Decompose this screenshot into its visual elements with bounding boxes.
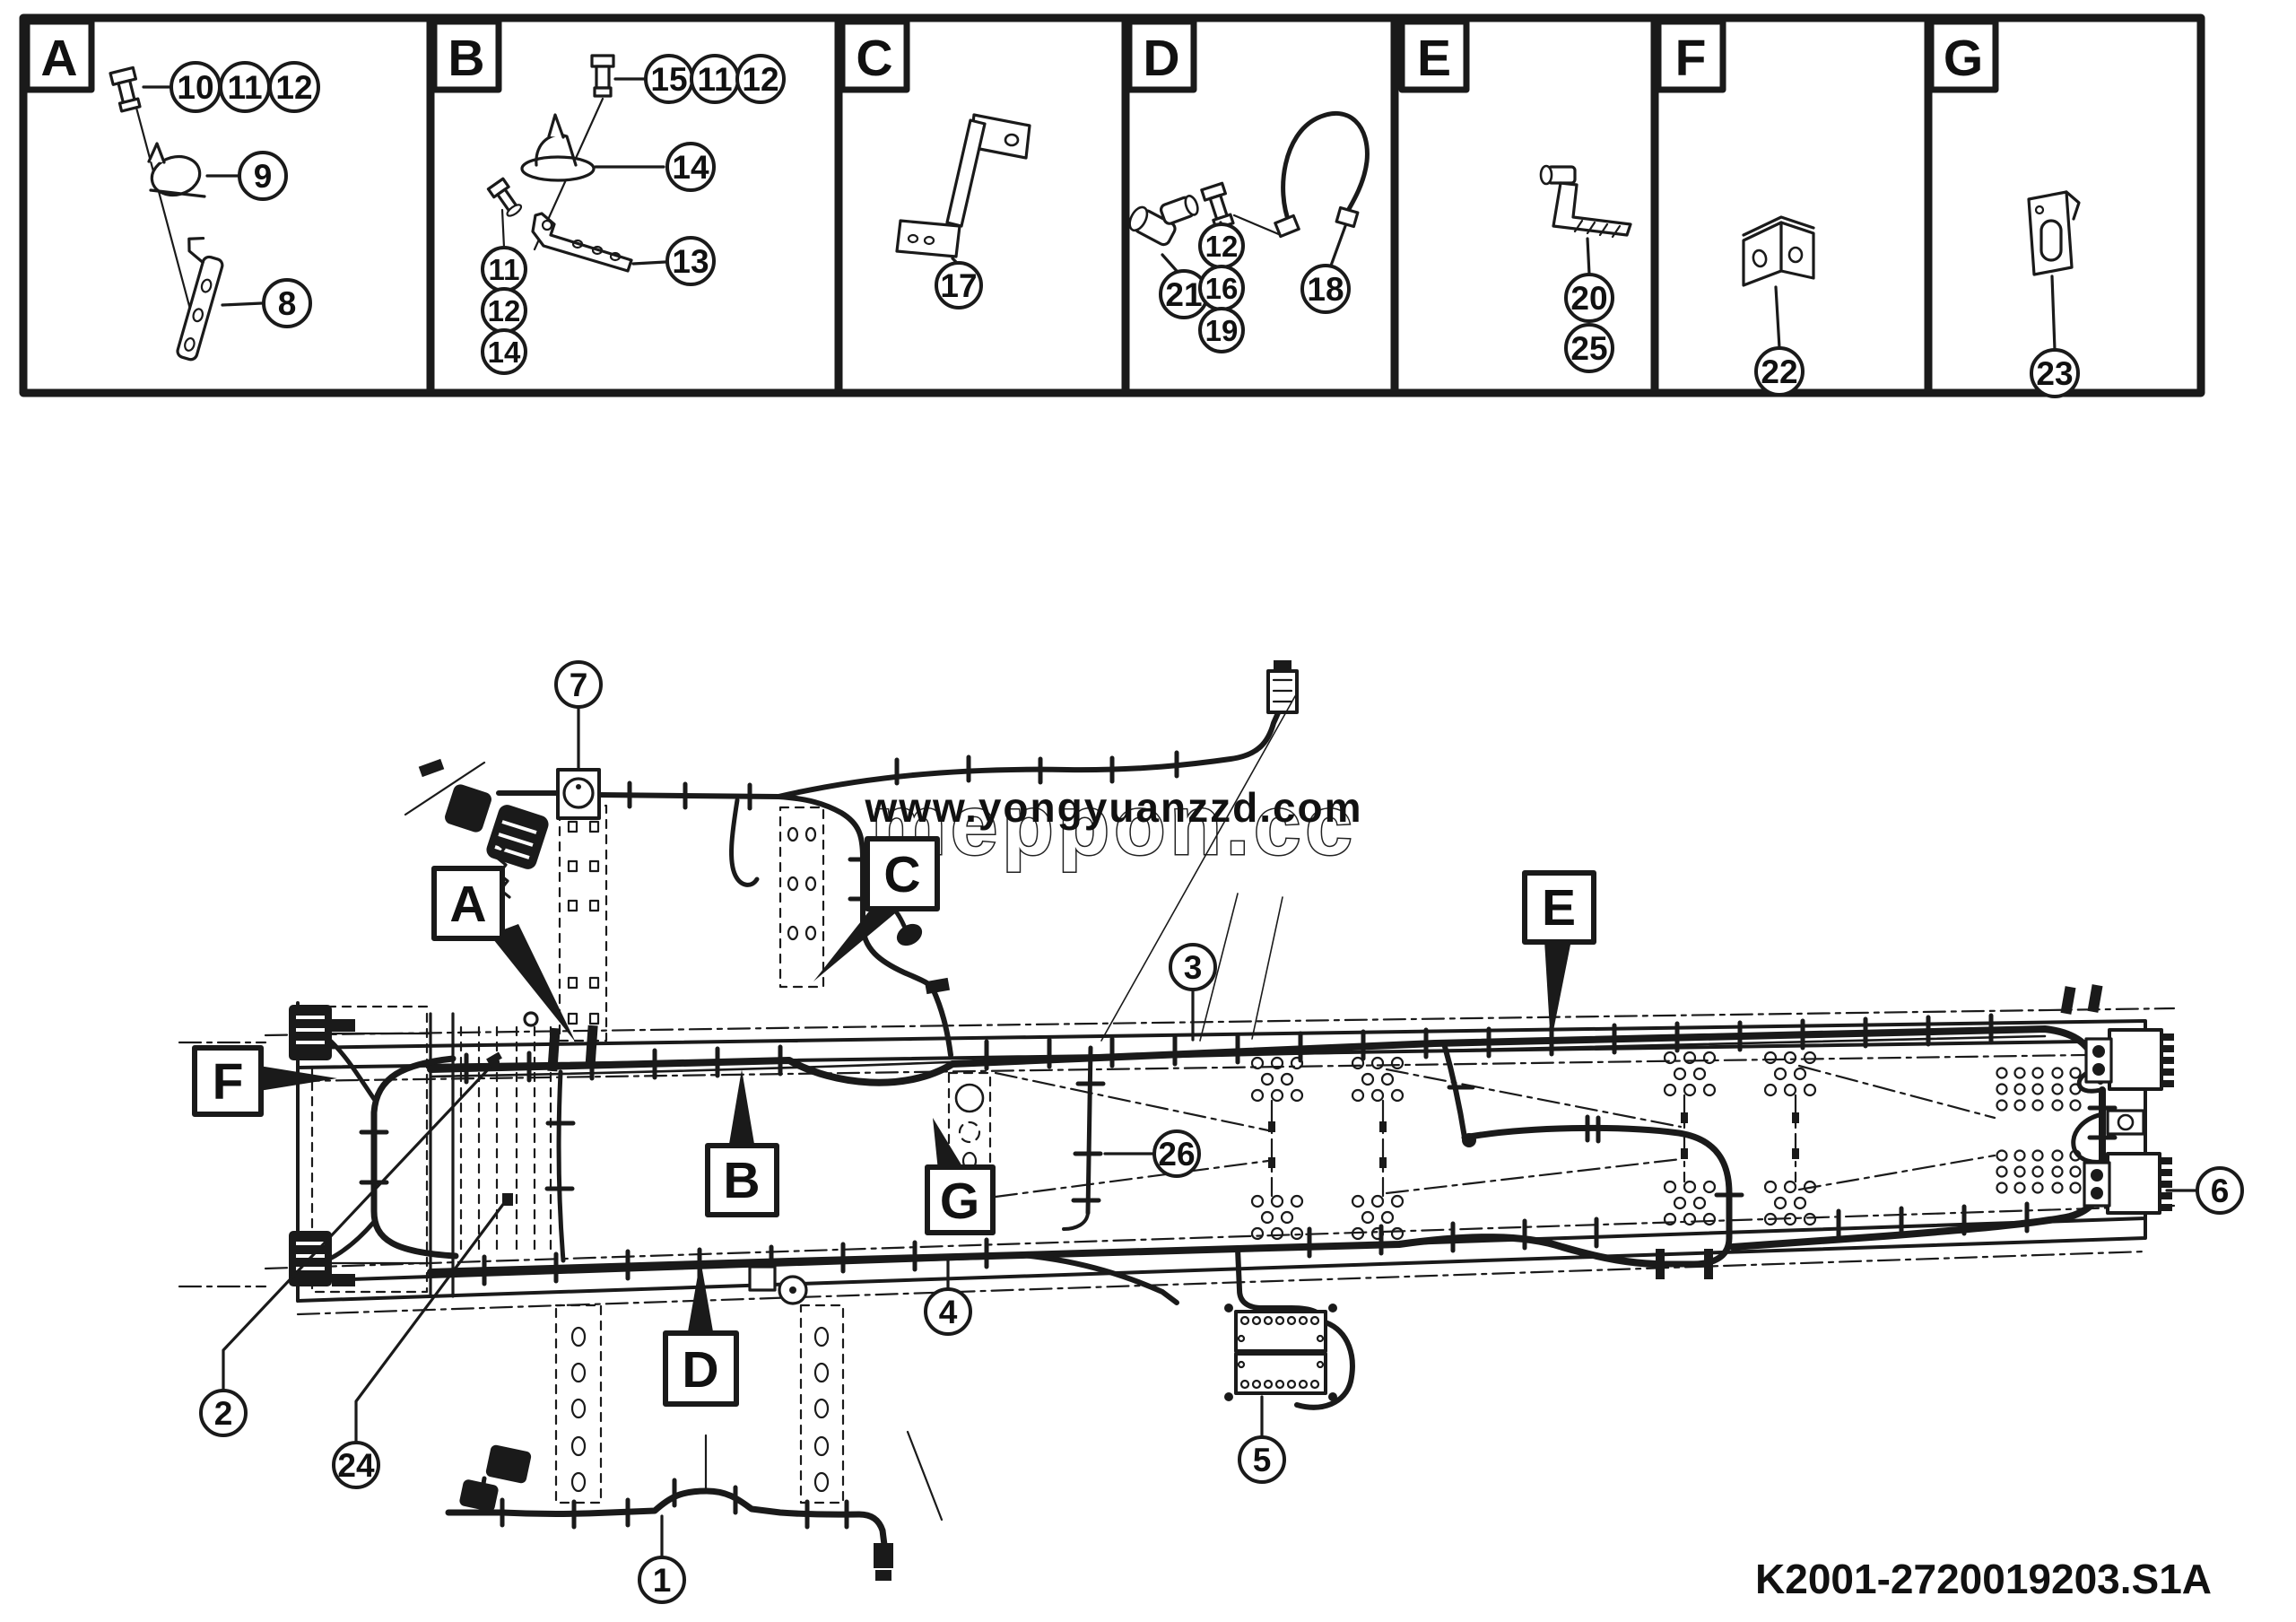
callout-20: 20: [1566, 275, 1613, 321]
marker-C: C: [813, 839, 937, 981]
callout-7: 7: [556, 662, 601, 818]
callout-23: 23: [2031, 350, 2078, 397]
svg-text:14: 14: [488, 336, 521, 369]
svg-text:13: 13: [672, 243, 709, 280]
panel-b-letter: B: [448, 30, 484, 87]
svg-text:12: 12: [742, 61, 778, 98]
callout-11: 11: [483, 248, 526, 291]
callout-3: 3: [1170, 945, 1215, 1040]
callout-22: 22: [1756, 348, 1803, 395]
svg-text:D: D: [682, 1341, 718, 1399]
panel-d-letter: D: [1143, 30, 1179, 87]
callout-12: 12: [737, 56, 784, 102]
marker-A: A: [434, 868, 576, 1042]
harness-connector-icon: [1268, 660, 1297, 712]
svg-text:B: B: [723, 1152, 760, 1209]
svg-text:11: 11: [227, 69, 262, 106]
svg-text:9: 9: [254, 158, 273, 195]
callout-4: 4: [926, 1260, 970, 1334]
parts-diagram-page: A 10 11 12 9: [0, 0, 2296, 1622]
callout-17: 17: [936, 263, 981, 308]
battery-junction-boxes: [1224, 1249, 1352, 1408]
svg-text:4: 4: [939, 1294, 958, 1330]
callout-10: 10: [171, 63, 220, 111]
marker-G: G: [927, 1118, 993, 1233]
callout-12: 12: [270, 63, 318, 111]
panel-a-letter: A: [40, 30, 77, 87]
svg-text:8: 8: [278, 285, 297, 322]
marker-E: E: [1525, 873, 1594, 1044]
panel-f-letter: F: [1675, 30, 1707, 87]
callout-1: 1: [639, 1516, 684, 1602]
svg-text:F: F: [213, 1053, 244, 1111]
svg-text:21: 21: [1165, 276, 1202, 313]
svg-text:C: C: [883, 846, 920, 903]
callout-15: 15: [646, 56, 692, 102]
callout-12: 12: [1200, 224, 1243, 267]
front-lamp-connector-icon: [289, 1231, 355, 1286]
marker-B: B: [708, 1069, 777, 1215]
svg-text:20: 20: [1570, 280, 1607, 317]
svg-text:3: 3: [1184, 949, 1203, 986]
svg-text:5: 5: [1253, 1442, 1272, 1478]
callout-6: 6: [2167, 1168, 2242, 1213]
rear-hole-cluster: [1997, 1068, 2081, 1193]
svg-text:15: 15: [650, 61, 687, 98]
svg-text:E: E: [1542, 879, 1576, 937]
rear-connector-stack: [2060, 984, 2174, 1213]
parts-diagram-canvas: A 10 11 12 9: [0, 0, 2296, 1622]
svg-text:12: 12: [275, 69, 312, 106]
svg-text:14: 14: [672, 149, 709, 186]
chassis-main-view: meppon.cc www.yongyuanzzd.com: [179, 660, 2242, 1602]
svg-text:10: 10: [177, 69, 213, 106]
svg-text:11: 11: [697, 61, 732, 98]
svg-text:12: 12: [488, 294, 521, 327]
svg-text:2: 2: [214, 1395, 233, 1432]
callout-11: 11: [221, 63, 269, 111]
svg-text:25: 25: [1570, 330, 1607, 367]
svg-text:19: 19: [1205, 314, 1239, 347]
detail-strip: A 10 11 12 9: [23, 18, 2201, 397]
svg-text:22: 22: [1761, 353, 1797, 390]
marker-D: D: [665, 1260, 736, 1404]
crossmember-stations: [949, 1052, 2081, 1239]
svg-text:1: 1: [653, 1562, 672, 1599]
panel-c-letter: C: [856, 30, 892, 87]
svg-text:7: 7: [570, 667, 588, 703]
callout-14: 14: [483, 330, 526, 373]
svg-text:12: 12: [1205, 230, 1239, 263]
svg-text:26: 26: [1158, 1136, 1195, 1173]
svg-text:24: 24: [337, 1447, 375, 1484]
svg-text:16: 16: [1205, 272, 1239, 305]
svg-text:A: A: [449, 876, 486, 933]
callout-12: 12: [483, 289, 526, 332]
panel-e-letter: E: [1417, 30, 1451, 87]
callout-19: 19: [1200, 309, 1243, 352]
callout-16: 16: [1200, 266, 1243, 310]
callout-14: 14: [667, 144, 714, 190]
callout-26: 26: [1105, 1131, 1199, 1176]
svg-text:18: 18: [1307, 271, 1344, 308]
callout-8: 8: [264, 280, 310, 327]
svg-text:G: G: [940, 1173, 979, 1230]
bottom-harness: [448, 1432, 942, 1581]
callout-9: 9: [239, 153, 286, 199]
callout-5: 5: [1239, 1397, 1284, 1482]
callout-25: 25: [1566, 325, 1613, 371]
svg-text:17: 17: [940, 267, 977, 304]
svg-text:6: 6: [2211, 1173, 2230, 1209]
hex-bolt-icon: [592, 56, 613, 96]
callout-13: 13: [667, 238, 714, 284]
watermark-url-text: www.yongyuanzzd.com: [864, 784, 1362, 831]
panel-g-letter: G: [1944, 30, 1983, 87]
svg-text:11: 11: [489, 253, 520, 286]
drawing-number: K2001-2720019203.S1A: [1755, 1556, 2212, 1602]
svg-text:23: 23: [2036, 355, 2073, 392]
callout-18: 18: [1302, 266, 1349, 312]
callout-11: 11: [691, 56, 738, 102]
